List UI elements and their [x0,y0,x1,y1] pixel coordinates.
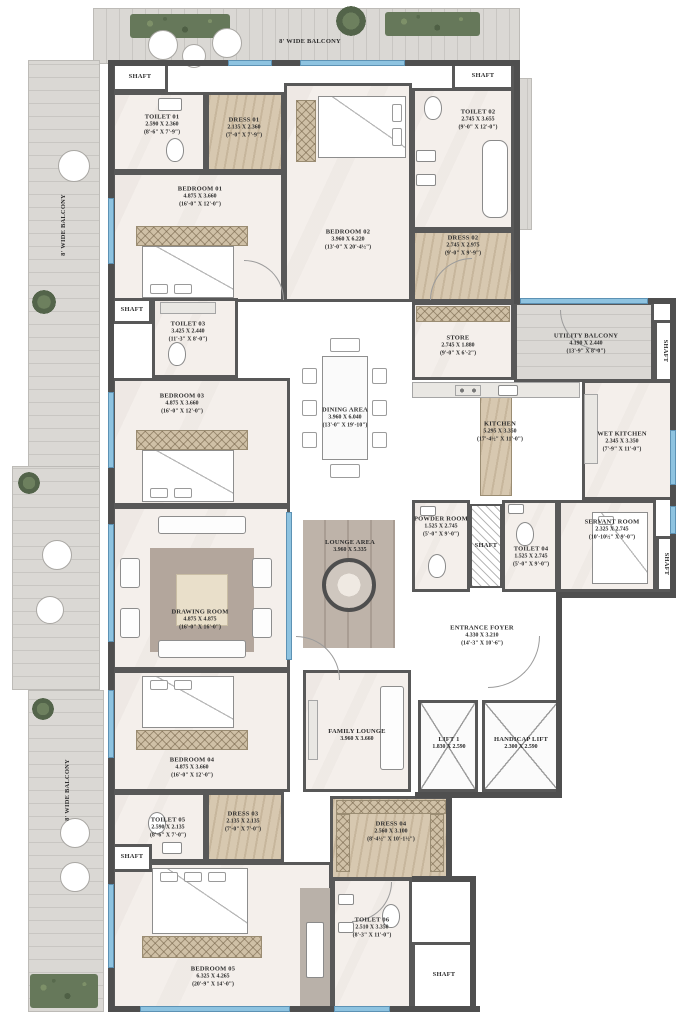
bathtub-icon [482,140,508,218]
room-label-toilet-03: TOILET 03 3.425 X 2.440 (11'-3" X 8'-0") [169,320,208,344]
toilet-icon [424,96,442,120]
shaft-label: SHAFT [661,340,669,363]
armchair-icon [252,558,272,588]
shaft-label: SHAFT [475,542,498,550]
room-label-handicap-lift: HANDICAP LIFT 2.300 X 2.590 [494,736,548,752]
toilet-icon [428,554,446,578]
wall [470,876,476,1012]
shaft-label: SHAFT [129,73,152,81]
armchair-icon [120,608,140,638]
planter-icon [30,974,98,1008]
dining-chair-icon [372,432,387,448]
balcony-label-left: 8' WIDE BALCONY [60,194,68,256]
deck-chair-icon [42,540,72,570]
pillow-icon [208,872,226,882]
room-label-toilet-04: TOILET 04 1.525 X 2.745 (5'-0" X 9'-0") [513,545,549,569]
wall [446,796,452,882]
shaft-label: SHAFT [121,306,144,314]
sofa-icon [158,640,246,658]
room-label-wet-kitchen: WET KITCHEN 2.345 X 3.350 (7'-9" X 11'-0… [597,430,647,454]
store-shelf-icon [416,306,510,322]
wall [556,592,562,798]
deck-chair-icon [60,862,90,892]
dresser-counter-icon [336,800,446,814]
room-label-bedroom-03: BEDROOM 03 4.875 X 3.660 (16'-0" X 12'-0… [160,392,204,416]
room-label-dining-area: DINING AREA 3.960 X 6.040 (13'-0" X 19'-… [322,406,368,430]
pillow-icon [150,488,168,498]
room-label-powder-room: POWDER ROOM 1.525 X 2.745 (5'-0" X 9'-0"… [414,515,468,539]
deck-chair-icon [212,28,242,58]
deck-left-bottom [28,690,104,1012]
window [108,690,114,758]
room-label-entrance-foyer: ENTRANCE FOYER 4.330 X 3.210 (14'-3" X 1… [450,624,514,648]
dining-chair-icon [302,400,317,416]
wall [514,60,520,304]
plant-icon [32,698,54,720]
window [670,430,676,485]
window [140,1006,290,1012]
wardrobe-icon [296,100,316,162]
dining-chair-icon [302,432,317,448]
room-label-dress-03: DRESS 03 2.135 X 2.135 (7'-0" X 7'-0") [225,810,261,834]
plant-icon [18,472,40,494]
dining-chair-icon [302,368,317,384]
room-label-bedroom-05: BEDROOM 05 6.325 X 4.265 (20'-9" X 14'-0… [191,965,235,989]
room-label-store: STORE 2.745 X 1.880 (9'-0" X 6'-2") [440,334,476,358]
kitchen-sink-icon [498,385,518,396]
window [108,884,114,968]
hob-icon [455,385,481,396]
deck-chair-icon [36,596,64,624]
kitchen-counter-icon [412,382,580,398]
shaft-label: SHAFT [472,72,495,80]
wall [412,876,476,882]
room-label-utility-balcony: UTILITY BALCONY 4.190 X 2.440 (13'-9" X … [554,332,618,356]
wet-kitchen-counter-icon [584,394,598,464]
room-label-toilet-01: TOILET 01 2.590 X 2.360 (8'-6" X 7'-9") [144,113,180,137]
room-label-toilet-06: TOILET 06 2.510 X 3.350 (8'-3" X 11'-0") [353,916,392,940]
room-label-lift-1: LIFT 1 1.830 X 2.590 [432,736,465,752]
dining-chair-icon [372,400,387,416]
pillow-icon [174,680,192,690]
sofa-icon [158,516,246,534]
shaft-label: SHAFT [433,971,456,979]
sink-icon [416,150,436,162]
balcony-label-bottom-left: 8' WIDE BALCONY [64,759,72,821]
mirror-icon [306,922,324,978]
deck-left-mid [12,466,100,690]
room-label-servant-room: SERVANT ROOM 2.325 X 2.745 (10'-10½" X 9… [585,518,640,542]
room-label-dress-04: DRESS 04 2.560 X 3.100 (8'-4½" X 10'-1½"… [367,820,415,844]
room-label-dress-01: DRESS 01 2.135 X 2.360 (7'-0" X 7'-9") [226,116,262,140]
room-label-family-lounge: FAMILY LOUNGE 3.960 X 3.660 [328,728,385,744]
deck-chair-icon [60,818,90,848]
pillow-icon [184,872,202,882]
deck-left [28,60,100,468]
pillow-icon [150,680,168,690]
wall [415,792,562,798]
window [334,1006,390,1012]
window [228,60,272,66]
window [108,198,114,264]
room-label-lounge-area: LOUNGE AREA 3.960 X 5.335 [325,539,375,555]
window [108,524,114,642]
toilet-icon [168,342,186,366]
plant-icon [336,6,366,36]
pillow-icon [174,284,192,294]
window [670,506,676,534]
shaft-label: SHAFT [121,853,144,861]
pillow-icon [174,488,192,498]
window [108,392,114,468]
room-label-toilet-02: TOILET 02 2.745 X 3.655 (9'-0" X 12'-0") [459,108,498,132]
pillow-icon [392,104,402,122]
kitchen-cabinet-icon [480,392,512,496]
armchair-icon [252,608,272,638]
wardrobe-icon [136,430,248,450]
floor-plan: 8' WIDE BALCONY 8' WIDE BALCONY 8' WIDE … [0,0,689,1024]
wardrobe-icon [136,226,248,246]
dresser-counter-icon [336,814,350,872]
tv-unit-icon [308,700,318,760]
sink-icon [162,842,182,854]
sink-icon [508,504,524,514]
room-label-drawing-room: DRAWING ROOM 4.875 X 4.875 (16'-0" X 16'… [171,608,228,632]
wardrobe-icon [136,730,248,750]
wall [562,592,676,598]
window [520,298,648,304]
room-label-bedroom-02: BEDROOM 02 3.960 X 6.220 (13'-0" X 20'-4… [325,228,371,252]
sink-icon [338,922,354,933]
armchair-icon [120,558,140,588]
planter-icon [385,12,480,36]
shaft-label: SHAFT [662,553,670,576]
room-label-bedroom-01: BEDROOM 01 4.875 X 3.660 (16'-0" X 12'-0… [178,185,222,209]
room-label-kitchen: KITCHEN 5.295 X 3.350 (17'-4½" X 11'-0") [477,420,523,444]
wardrobe-icon [142,936,262,958]
dining-chair-icon [330,338,360,352]
dining-chair-icon [330,464,360,478]
window [286,512,292,660]
dining-chair-icon [372,368,387,384]
pillow-icon [160,872,178,882]
vanity-counter-icon [160,302,216,314]
sink-icon [158,98,182,111]
window [300,60,405,66]
deck-chair-icon [148,30,178,60]
toilet-icon [166,138,184,162]
room-label-dress-02: DRESS 02 2.745 X 2.975 (9'-0" X 9'-9") [445,234,481,258]
toilet-icon [516,522,534,546]
room-label-bedroom-04: BEDROOM 04 4.875 X 3.660 (16'-0" X 12'-0… [170,756,214,780]
round-table-icon [322,558,376,612]
deck-chair-icon [58,150,90,182]
balcony-label-top: 8' WIDE BALCONY [279,38,341,46]
dresser-counter-icon [430,814,444,872]
sink-icon [416,174,436,186]
plant-icon [32,290,56,314]
pillow-icon [150,284,168,294]
pillow-icon [392,128,402,146]
room-label-toilet-05: TOILET 05 2.590 X 2.135 (8'-6" X 7'-0") [150,816,186,840]
